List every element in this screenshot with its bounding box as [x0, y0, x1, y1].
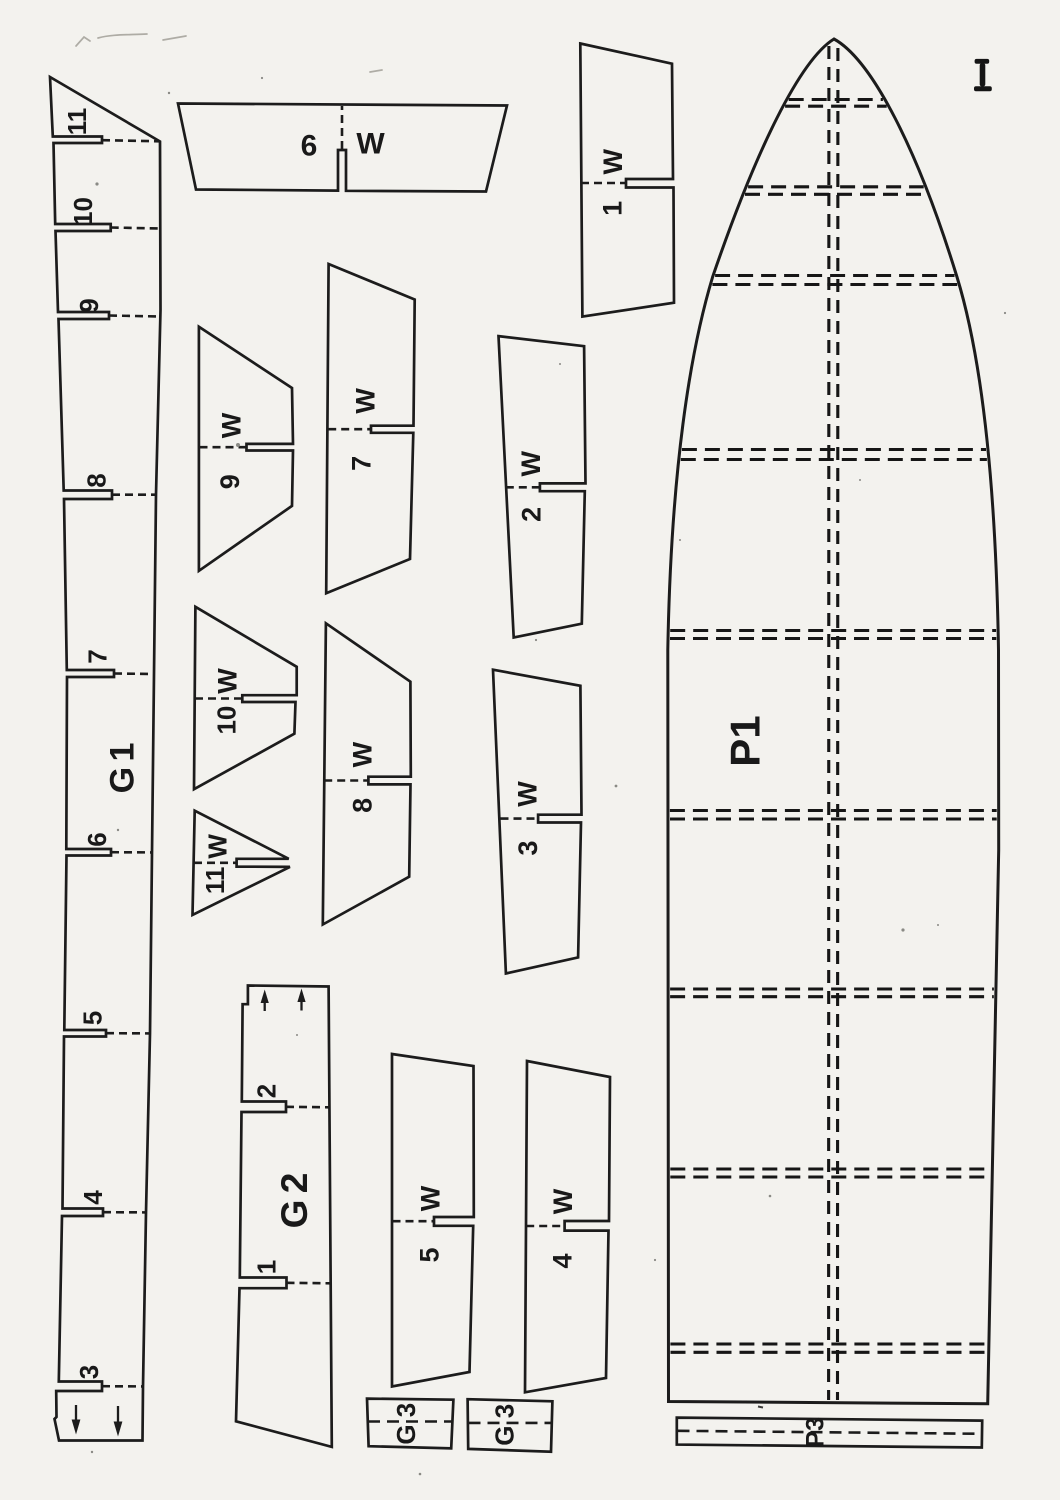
svg-text:5: 5	[414, 1247, 444, 1262]
svg-text:9: 9	[74, 298, 104, 312]
svg-text:2: 2	[252, 1084, 282, 1098]
svg-text:W: W	[598, 149, 628, 175]
svg-text:4: 4	[547, 1253, 577, 1268]
svg-text:9: 9	[215, 474, 245, 489]
svg-text:G 3: G 3	[490, 1404, 520, 1446]
svg-text:3: 3	[74, 1365, 104, 1379]
svg-text:W: W	[512, 781, 542, 807]
svg-text:5: 5	[78, 1011, 108, 1025]
svg-text:10: 10	[212, 706, 242, 735]
svg-text:W: W	[548, 1188, 578, 1214]
svg-text:6: 6	[301, 130, 318, 163]
svg-text:W: W	[216, 412, 246, 438]
svg-text:W: W	[212, 668, 242, 694]
svg-text:P3: P3	[802, 1417, 830, 1448]
svg-text:11: 11	[200, 867, 230, 895]
svg-text:11: 11	[62, 108, 92, 136]
svg-text:W: W	[351, 388, 381, 414]
svg-text:10: 10	[68, 197, 98, 226]
svg-text:G 3: G 3	[391, 1403, 421, 1445]
svg-text:3: 3	[513, 840, 543, 855]
svg-text:G 1: G 1	[103, 744, 141, 794]
svg-text:6: 6	[82, 832, 112, 846]
svg-text:W: W	[347, 741, 377, 767]
svg-text:7: 7	[83, 649, 113, 663]
svg-text:P1: P1	[722, 715, 769, 766]
svg-text:8: 8	[347, 798, 377, 813]
svg-text:2: 2	[516, 507, 546, 522]
svg-text:7: 7	[346, 456, 376, 471]
svg-text:G 2: G 2	[274, 1173, 315, 1228]
svg-text:W: W	[415, 1185, 445, 1211]
svg-text:1: 1	[252, 1260, 282, 1274]
svg-text:W: W	[203, 834, 233, 859]
svg-text:W: W	[356, 128, 385, 161]
svg-text:8: 8	[82, 473, 112, 487]
svg-text:W: W	[516, 451, 546, 477]
svg-text:1: 1	[597, 201, 627, 216]
svg-text:4: 4	[78, 1190, 108, 1205]
